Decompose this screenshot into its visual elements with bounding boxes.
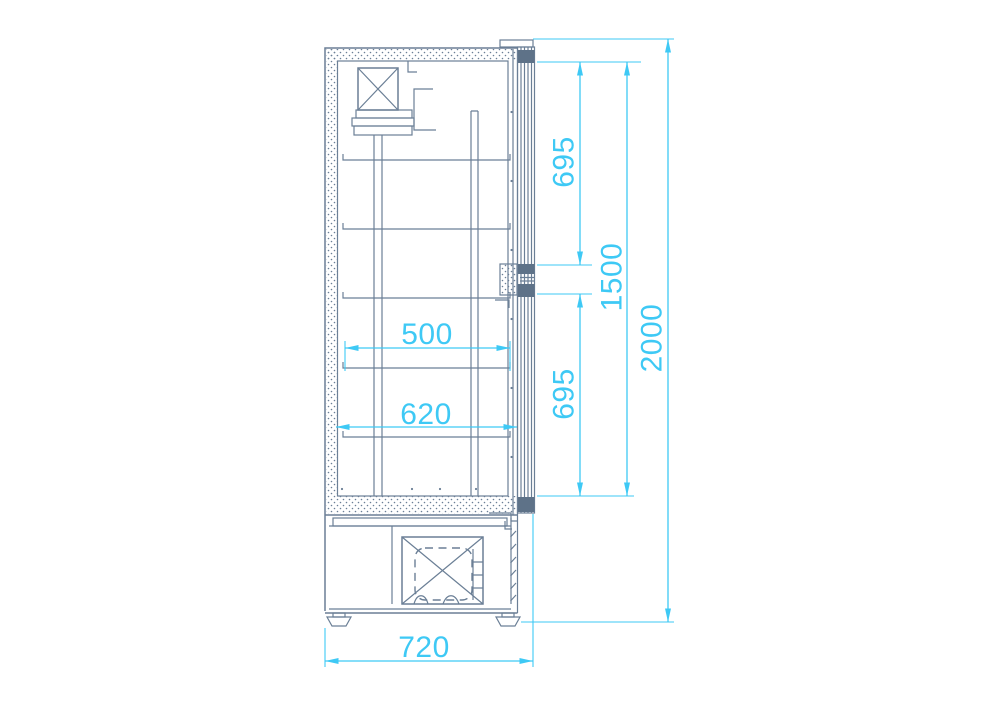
feet — [327, 613, 520, 626]
compartment-right-wall — [511, 515, 518, 613]
shelf — [343, 154, 510, 160]
shelf — [343, 223, 510, 229]
coil-plate — [352, 118, 414, 126]
dimension-upper-695: 695 — [548, 62, 581, 265]
frame-holes — [341, 111, 513, 490]
dimension-lower-695: 695 — [548, 294, 581, 496]
rear-rail — [374, 135, 382, 496]
dimension-2000: 2000 — [636, 39, 669, 622]
dim-label-overall-depth: 720 — [398, 631, 450, 664]
coil-plate — [354, 126, 412, 135]
dim-label-shelf-depth: 500 — [401, 318, 453, 351]
drawing-page: 695 695 1500 2000 500 620 720 — [0, 0, 1000, 714]
ceiling-bracket — [408, 61, 417, 72]
dim-label-upper-section: 695 — [548, 136, 581, 188]
insulation-foam — [326, 49, 517, 514]
dim-label-interior-depth: 620 — [400, 398, 452, 431]
dim-label-lower-section: 695 — [548, 368, 581, 420]
drip-tray — [333, 518, 507, 526]
machine-compartment — [325, 513, 518, 613]
evaporator-unit — [352, 61, 436, 135]
door-glass-layers — [521, 47, 532, 513]
refrigerant-pipe — [414, 89, 436, 130]
top-hinge-block — [518, 50, 535, 63]
fan-cross — [358, 68, 398, 110]
dimension-620: 620 — [336, 398, 517, 431]
compressor-shell-dashed — [415, 548, 472, 600]
middle-hinge-lower-block — [518, 284, 535, 297]
shelves — [343, 154, 510, 437]
compressor — [402, 537, 483, 604]
middle-hinge-upper-block — [518, 264, 535, 274]
shelf-rails — [374, 111, 478, 496]
coil-plate — [356, 110, 412, 118]
dimension-extension-lines — [325, 39, 674, 667]
dim-label-door-height: 1500 — [596, 243, 629, 312]
compressor-terminal — [473, 549, 483, 600]
right-foot — [496, 617, 520, 626]
dimension-720: 720 — [325, 631, 533, 664]
cabinet-drawing: 695 695 1500 2000 500 620 720 — [0, 0, 1000, 714]
dimension-1500: 1500 — [596, 62, 629, 496]
dimension-500: 500 — [345, 318, 510, 351]
bottom-hinge-block — [518, 497, 535, 512]
dim-label-overall-height: 2000 — [636, 304, 669, 373]
top-hinge-plate — [500, 40, 533, 47]
mullion-bracket — [495, 300, 509, 308]
shelf — [343, 292, 510, 298]
front-rail — [471, 111, 478, 496]
shelf — [343, 362, 510, 368]
shelf — [343, 431, 510, 437]
left-foot — [327, 617, 351, 626]
